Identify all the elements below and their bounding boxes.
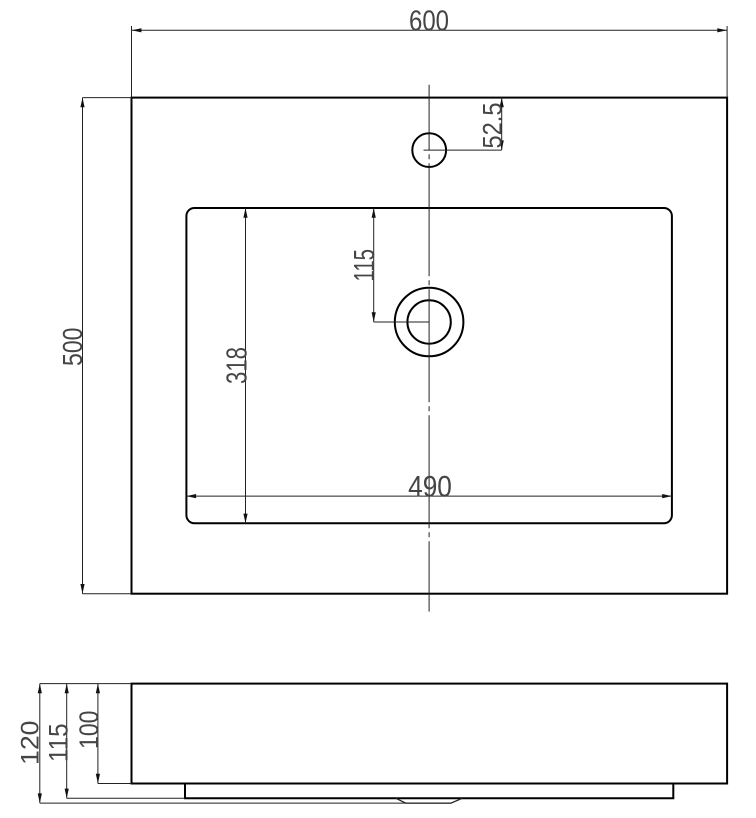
svg-text:600: 600 <box>409 5 449 37</box>
svg-text:120: 120 <box>17 721 45 766</box>
svg-text:490: 490 <box>408 470 452 503</box>
svg-text:318: 318 <box>221 347 253 384</box>
svg-text:52.5: 52.5 <box>478 103 508 149</box>
svg-text:500: 500 <box>57 328 88 367</box>
svg-text:115: 115 <box>349 249 381 282</box>
svg-text:100: 100 <box>74 711 104 750</box>
svg-text:115: 115 <box>44 724 74 763</box>
